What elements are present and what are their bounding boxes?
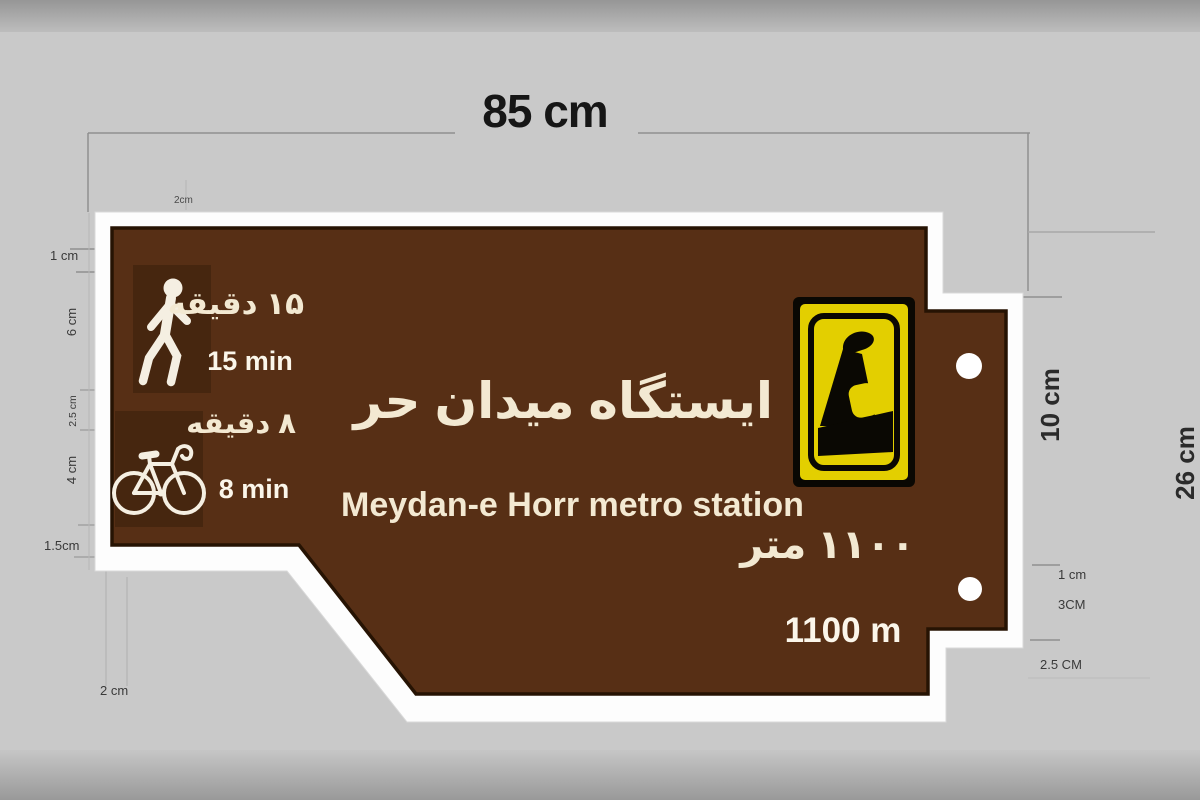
mounting-hole-bottom <box>958 577 982 601</box>
walk-time-english: 15 min <box>200 346 300 377</box>
sign-spec-diagram: 85 cm 2cm 1 cm 6 cm 2.5 cm 4 cm 1.5cm 2 … <box>0 0 1200 800</box>
bike-time-english: 8 min <box>204 474 304 505</box>
border-bottom-label: 2 cm <box>100 683 128 698</box>
tab-height-label: 10 cm <box>1035 350 1065 460</box>
tab-border-label: 1 cm <box>1058 567 1086 582</box>
bottom-gap-label: 1.5cm <box>44 538 79 553</box>
tehran-metro-logo-icon <box>793 297 915 487</box>
total-height-label: 26 cm <box>1170 403 1200 523</box>
icon-gap-label: 2.5 cm <box>67 381 81 441</box>
mounting-hole-top <box>956 353 982 379</box>
hole-offset-label: 3CM <box>1058 597 1085 612</box>
bike-time-persian: ۸ دقیقه <box>198 406 296 441</box>
total-width-label: 85 cm <box>455 84 635 138</box>
tab-bottom-offset-label: 2.5 CM <box>1040 657 1082 672</box>
station-name-persian: ایستگاه میدان حر <box>373 372 773 430</box>
walk-time-persian: ۱۵ دقیقه <box>200 286 304 322</box>
bike-box-height-label: 4 cm <box>64 440 80 500</box>
distance-english: 1100 m <box>773 611 913 651</box>
walk-box-height-label: 6 cm <box>64 292 80 352</box>
distance-persian: ۱۱۰۰ متر <box>775 522 915 568</box>
border-top-label: 1 cm <box>50 248 78 263</box>
top-offset-label: 2cm <box>174 195 193 206</box>
station-name-english: Meydan-e Horr metro station <box>341 486 781 525</box>
